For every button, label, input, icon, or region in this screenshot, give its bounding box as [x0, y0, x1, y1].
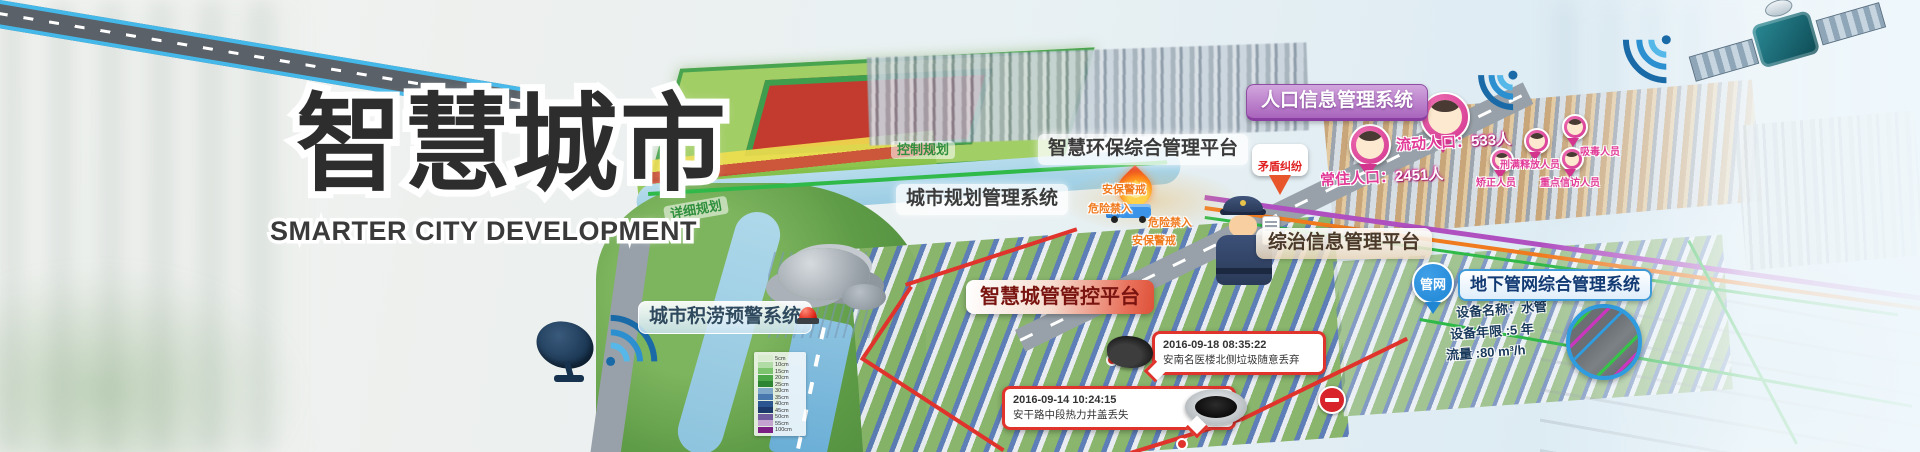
- blurred-trees-left: [0, 270, 300, 452]
- legend-swatch: [758, 401, 773, 407]
- subtitle: SMARTER CITY DEVELOPMENT: [270, 216, 697, 247]
- street-trees: [0, 0, 10, 10]
- event-time: 2016-09-14 10:24:15: [1013, 393, 1177, 408]
- legend-row: 100cm: [758, 427, 802, 434]
- category-label-correction: 矫正人员: [1476, 174, 1516, 189]
- legend-label: 10cm: [775, 362, 789, 368]
- event-callout-garbage[interactable]: 2016-09-18 08:35:22 安南名医楼北侧垃圾随意丢弃: [1152, 331, 1326, 375]
- category-label-drug: 吸毒人员: [1580, 143, 1620, 158]
- legend-swatch: [758, 407, 773, 413]
- event-desc: 安南名医楼北侧垃圾随意丢弃: [1163, 353, 1315, 368]
- label-pipe-network-system[interactable]: 地下管网综合管理系统: [1458, 269, 1652, 301]
- category-label-released: 刑满释放人员: [1500, 156, 1560, 171]
- legend-label: 40cm: [775, 401, 789, 407]
- event-time: 2016-09-18 08:35:22: [1163, 338, 1315, 353]
- pipe-badge: 管网: [1412, 262, 1454, 304]
- banner-title-block: 智慧城市 智慧城市 SMARTER CITY DEVELOPMENT SMART…: [296, 58, 936, 248]
- label-governance-platform[interactable]: 综治信息管理平台: [1256, 228, 1432, 259]
- no-entry-sign-icon: [1318, 386, 1346, 414]
- floating-population-label: 流动人口：: [1396, 133, 1472, 154]
- event-desc: 安干路中段热力井盖丢失: [1013, 408, 1177, 423]
- legend-swatch: [758, 420, 773, 426]
- legend-swatch: [758, 381, 773, 387]
- legend-label: 50cm: [775, 414, 789, 420]
- legend-swatch: [758, 375, 773, 381]
- danger-no-entry-text: 危险禁入: [1148, 214, 1192, 230]
- event-callout-manhole[interactable]: 2016-09-14 10:24:15 安干路中段热力井盖丢失: [1002, 386, 1236, 430]
- label-population-system[interactable]: 人口信息管理系统: [1246, 84, 1428, 121]
- label-flood-warning-system[interactable]: 城市积涝预警系统: [638, 301, 812, 334]
- label-environment-platform[interactable]: 智慧环保综合管理平台: [1038, 134, 1248, 165]
- siren-icon: [797, 307, 819, 325]
- legend-swatch: [758, 394, 773, 400]
- resident-population-label: 常住人口：: [1320, 168, 1396, 189]
- underground-pipe-photo: [1566, 304, 1642, 380]
- legend-label: 100cm: [775, 427, 792, 433]
- rain-cloud-small-icon: [842, 284, 886, 310]
- legend-swatch: [758, 388, 773, 394]
- legend-swatch: [758, 362, 773, 368]
- smart-city-banner: 5cm 10cm 15cm 20cm 25cm 30cm 35cm 40cm 4…: [0, 0, 1920, 452]
- dispute-label: 矛盾纠纷: [1255, 161, 1305, 175]
- category-label-petition: 重点信访人员: [1540, 174, 1600, 189]
- legend-swatch: [758, 414, 773, 420]
- pipe-network-pin[interactable]: 管网: [1412, 262, 1454, 322]
- alert-dot: [1176, 438, 1188, 450]
- main-title: 智慧城市: [296, 58, 728, 212]
- security-alert-text: 安保警戒: [1102, 181, 1146, 197]
- legend-label: 20cm: [775, 375, 789, 381]
- flood-depth-legend: 5cm 10cm 15cm 20cm 25cm 30cm 35cm 40cm 4…: [754, 352, 806, 436]
- dispute-figures: [1255, 146, 1305, 161]
- resident-population-value: 2451人: [1395, 166, 1444, 186]
- legend-swatch: [758, 427, 773, 433]
- legend-swatch: [758, 368, 773, 374]
- legend-label: 30cm: [775, 388, 789, 394]
- floating-population-value: 533人: [1471, 131, 1512, 150]
- legend-swatch: [758, 355, 773, 361]
- garbage-photo: [1107, 336, 1153, 368]
- danger-no-entry-text: 危险禁入: [1088, 200, 1132, 216]
- security-alert-text: 安保警戒: [1132, 232, 1176, 248]
- label-city-management-platform[interactable]: 智慧城管管控平台: [966, 280, 1154, 314]
